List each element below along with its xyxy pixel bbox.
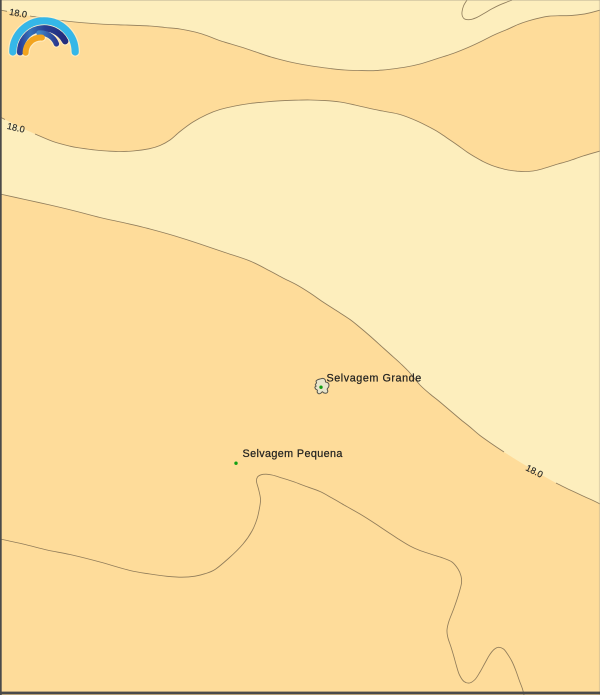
svg-text:Selvagem Grande: Selvagem Grande (327, 372, 422, 384)
svg-text:Selvagem Pequena: Selvagem Pequena (243, 448, 343, 460)
